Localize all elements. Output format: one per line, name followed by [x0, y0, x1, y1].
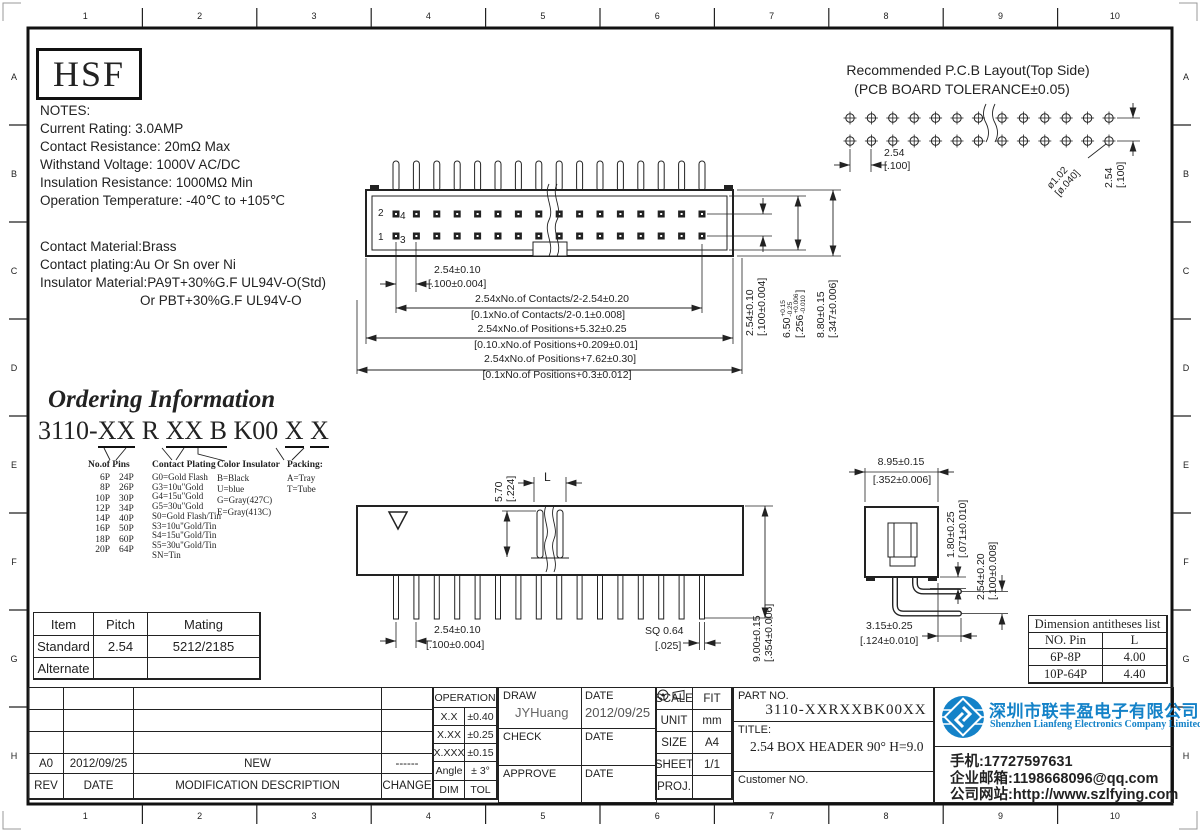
rev-cell: 2012/09/25	[64, 754, 134, 774]
ruler-mark: D	[6, 319, 22, 416]
rev-cell: A0	[29, 754, 64, 774]
table-cell: 6P-8P	[1029, 649, 1103, 666]
pcb-dim-pitch-mm: 2.54	[884, 147, 904, 159]
ruler-mark: 5	[486, 808, 600, 824]
material-line: Contact Material:Brass	[40, 239, 177, 254]
ruler-mark: 8	[829, 808, 943, 824]
item-pitch-mating-table: Item Pitch Mating Standard 2.54 5212/218…	[33, 612, 261, 680]
tol-cell: X.XX	[434, 726, 465, 744]
table-cell: Standard	[34, 636, 94, 658]
ruler-mark: 7	[714, 8, 828, 24]
list-item: 12P34P	[88, 504, 134, 514]
dim-tail2-in: [.124±0.010]	[860, 635, 918, 647]
front-view-drawing	[357, 477, 773, 650]
list-item: 18P60P	[88, 535, 134, 545]
unit-value: mm	[693, 710, 732, 732]
list-item: 16P50P	[88, 524, 134, 534]
ordering-col-pins: No.of Pins 6P24P8P26P10P30P12P34P14P40P1…	[88, 460, 134, 555]
ruler-mark: F	[6, 513, 22, 610]
table-cell: 10P-64P	[1029, 666, 1103, 683]
rev-cell: NEW	[134, 754, 382, 774]
material-line: Contact plating:Au Or Sn over Ni	[40, 257, 236, 272]
size-value: A4	[693, 732, 732, 754]
note-line: Operation Temperature: -40℃ to +105℃	[40, 193, 285, 209]
table-cell: 4.40	[1103, 666, 1167, 683]
tol-cell: ±0.40	[465, 708, 497, 726]
ordering-code-segment: B	[203, 416, 227, 448]
note-line: Contact Resistance: 20mΩ Max	[40, 139, 230, 154]
approve-label: APPROVE	[503, 768, 556, 780]
ruler-mark: 2	[142, 808, 256, 824]
title-label: TITLE:	[738, 724, 771, 736]
dim-pitch-in: [.100±0.004]	[428, 278, 486, 290]
ruler-mark: 5	[486, 8, 600, 24]
company-name-en: Shenzhen Lianfeng Electronics Company Li…	[990, 719, 1200, 730]
dimension-antitheses-table: Dimension antitheses list NO. Pin L 6P-8…	[1028, 615, 1168, 684]
dim-total-height: 9.00±0.15[.354±0.006]	[752, 604, 775, 662]
revision-table: A0 2012/09/25 NEW ------ REV DATE MODIFI…	[28, 687, 434, 800]
ordering-code-segment: X	[310, 416, 329, 448]
company-logo-icon	[940, 694, 986, 740]
tol-cell: X.XXX	[434, 744, 465, 762]
list-item: E=Gray(413C)	[217, 507, 280, 518]
ruler-top: 12345678910	[28, 8, 1172, 24]
rev-header: REV	[29, 774, 64, 799]
ruler-mark: G	[6, 610, 22, 707]
dim-tail-length: 5.70[.224]	[494, 476, 517, 502]
ruler-mark: D	[1178, 319, 1194, 416]
tol-cell: DIM	[434, 781, 465, 799]
ruler-mark: 10	[1058, 808, 1172, 824]
pcb-dim-pitch-in: [.100]	[884, 160, 910, 172]
list-item: 6P24P	[88, 473, 134, 483]
dim-positions2-in: [0.1xNo.of Positions+0.3±0.012]	[482, 369, 631, 381]
ordering-title: Ordering Information	[48, 386, 275, 414]
ordering-col-header: No.of Pins	[88, 460, 134, 470]
ruler-mark: F	[1178, 513, 1194, 610]
ruler-mark: 9	[943, 8, 1057, 24]
ruler-mark: 8	[829, 8, 943, 24]
dim-frontpitch-in: [.100±0.004]	[426, 639, 484, 651]
part-block: PART NO. 3110-XXRXXBK00XX TITLE: 2.54 BO…	[733, 687, 935, 803]
ordering-col-header: Packing:	[287, 460, 323, 470]
table-cell: Alternate	[34, 658, 94, 679]
ruler-mark: H	[6, 707, 22, 804]
ruler-mark: A	[6, 28, 22, 125]
tolerance-table: OPERATION X.X ±0.40 X.XX ±0.25 X.XXX ±0.…	[433, 687, 498, 800]
pcb-layout-title: Recommended P.C.B Layout(Top Side)	[846, 62, 1089, 78]
dim-positions1-in: [0.10.xNo.of Positions+0.209±0.01]	[474, 339, 638, 351]
date-label: DATE	[585, 690, 614, 702]
pcb-dim-row: 2.54[.100]	[1104, 162, 1127, 188]
company-website: 公司网站:http://www.szlfying.com	[950, 783, 1178, 804]
list-item: 10P30P	[88, 494, 134, 504]
note-line: Withstand Voltage: 1000V AC/DC	[40, 157, 240, 172]
list-item: G=Gray(427C)	[217, 495, 280, 506]
table-title: OPERATION	[434, 688, 497, 708]
ruler-bottom: 12345678910	[28, 808, 1172, 824]
list-item: 14P40P	[88, 514, 134, 524]
table-cell	[148, 658, 260, 679]
ruler-mark: 3	[257, 8, 371, 24]
draw-date: 2012/09/25	[585, 705, 650, 720]
check-label: CHECK	[503, 731, 542, 743]
company-block: 深圳市联丰盈电子有限公司 Shenzhen Lianfeng Electroni…	[933, 687, 1174, 803]
part-no-label: PART NO.	[738, 690, 789, 702]
size-label: SIZE	[656, 732, 693, 754]
ruler-mark: 3	[257, 808, 371, 824]
company-logo-hsf: HSF	[36, 48, 142, 100]
list-item: B=Black	[217, 473, 280, 484]
proj-label: PROJ.	[656, 776, 693, 799]
list-item: 8P26P	[88, 483, 134, 493]
ruler-mark: 9	[943, 808, 1057, 824]
pin-label-4: 4	[400, 211, 406, 222]
ruler-mark: 7	[714, 808, 828, 824]
dim-pitch-mm: 2.54±0.10	[434, 264, 481, 276]
dim-tail2-mm: 3.15±0.25	[866, 620, 913, 632]
dim-L-label: L	[544, 470, 551, 484]
ruler-mark: 1	[28, 808, 142, 824]
dim-frontpitch-mm: 2.54±0.10	[434, 624, 481, 636]
part-no-value: 3110-XXRXXBK00XX	[765, 702, 926, 719]
scale-value: FIT	[693, 688, 732, 710]
ordering-col-plating: Contact Plating G0=Gold FlashG3=10u"Gold…	[152, 460, 221, 560]
dim-sq-mm: SQ 0.64	[645, 625, 684, 637]
tol-cell: ±0.15	[465, 744, 497, 762]
pcb-layout-pads	[834, 103, 1140, 172]
material-line: Or PBT+30%G.F UL94V-O	[140, 293, 302, 308]
sheet-label: SHEET	[656, 754, 693, 776]
drawing-sheet: 12345678910 12345678910 ABCDEFGH ABCDEFG…	[0, 0, 1200, 832]
ruler-mark: B	[1178, 125, 1194, 222]
pcb-layout-tolerance: (PCB BOARD TOLERANCE±0.05)	[854, 81, 1070, 97]
ordering-code-segment: X	[285, 416, 304, 448]
note-line: Insulation Resistance: 1000MΩ Min	[40, 175, 253, 190]
table-header: Pitch	[94, 613, 148, 636]
table-cell: 4.00	[1103, 649, 1167, 666]
ordering-col-header: Contact Plating	[152, 460, 221, 470]
projection-symbol-icon	[693, 776, 732, 799]
dim-width-mm: 8.95±0.15	[878, 456, 925, 468]
ruler-mark: 1	[28, 8, 142, 24]
table-cell	[94, 658, 148, 679]
unit-label: UNIT	[656, 710, 693, 732]
rev-header: CHANGE	[382, 774, 433, 799]
dim-outer-height: 8.80±0.15[.347±0.006]	[816, 280, 839, 338]
tol-cell: ± 3°	[465, 762, 497, 781]
dim-row-pitch: 2.54±0.20[.100±0.008]	[976, 542, 999, 600]
ruler-mark: E	[6, 416, 22, 513]
ordering-code: 3110-XX R XX B K00 X X	[38, 416, 329, 446]
table-title: Dimension antitheses list	[1029, 616, 1167, 633]
tol-cell: TOL	[465, 781, 497, 799]
draw-name: JYHuang	[515, 705, 568, 720]
customer-label: Customer NO.	[738, 774, 808, 786]
rev-header: MODIFICATION DESCRIPTION	[134, 774, 382, 799]
dim-sq-in: [.025]	[655, 640, 681, 652]
material-line: Insulator Material:PA9T+30%G.F UL94V-O(S…	[40, 275, 326, 290]
ordering-col-insulator: Color Insulator B=BlackU=blueG=Gray(427C…	[217, 460, 280, 518]
ordering-code-segment: XX	[98, 416, 136, 448]
table-cell: 2.54	[94, 636, 148, 658]
dim-inner-height: 6.50+0.15-0.25 [.256+0.006-0.010]	[781, 290, 807, 338]
table-header: Mating	[148, 613, 260, 636]
rev-cell: ------	[382, 754, 433, 774]
dim-positions2-mm: 2.54xNo.of Positions+7.62±0.30]	[484, 353, 636, 365]
table-header: Item	[34, 613, 94, 636]
ruler-mark: G	[1178, 610, 1194, 707]
dim-contacts-mm: 2.54xNo.of Contacts/2-2.54±0.20	[475, 293, 629, 305]
dim-pin-offset: 1.80±0.25[.071±0.010]	[946, 500, 969, 558]
ruler-left: ABCDEFGH	[6, 28, 22, 804]
ruler-mark: 6	[600, 8, 714, 24]
ruler-mark: 10	[1058, 8, 1172, 24]
notes-title: NOTES:	[40, 103, 90, 118]
ruler-mark: C	[6, 222, 22, 319]
ordering-code-segment: 3110-	[38, 416, 98, 445]
pin-label-1: 1	[378, 232, 384, 243]
dim-row-spacing: 2.54±0.10[.100±0.004]	[745, 278, 768, 336]
logo-text: HSF	[53, 53, 125, 95]
ordering-col-packing: Packing: A=TrayT=Tube	[287, 460, 323, 495]
ruler-mark: 6	[600, 808, 714, 824]
ruler-mark: 2	[142, 8, 256, 24]
ruler-right: ABCDEFGH	[1178, 28, 1194, 804]
ruler-mark: B	[6, 125, 22, 222]
draw-label: DRAW	[503, 690, 536, 702]
list-item: 20P64P	[88, 545, 134, 555]
dim-contacts-in: [0.1xNo.of Contacts/2-0.1±0.008]	[471, 309, 625, 321]
list-item: A=Tray	[287, 473, 323, 484]
table-header: L	[1103, 633, 1167, 649]
ruler-mark: E	[1178, 416, 1194, 513]
title-value: 2.54 BOX HEADER 90° H=9.0	[750, 739, 924, 755]
ordering-col-header: Color Insulator	[217, 460, 280, 470]
signature-block: DRAW JYHuang DATE 2012/09/25 CHECK DATE …	[498, 687, 657, 803]
sheet-value: 1/1	[693, 754, 732, 776]
tol-cell: X.X	[434, 708, 465, 726]
list-item: SN=Tin	[152, 551, 221, 561]
list-item: T=Tube	[287, 484, 323, 495]
ruler-mark: A	[1178, 28, 1194, 125]
rev-header: DATE	[64, 774, 134, 799]
note-line: Current Rating: 3.0AMP	[40, 121, 183, 136]
ordering-code-segment: R	[135, 416, 165, 445]
pin-label-3: 3	[400, 235, 406, 246]
list-item: U=blue	[217, 484, 280, 495]
ruler-mark: C	[1178, 222, 1194, 319]
ruler-mark: 4	[371, 8, 485, 24]
info-table: SCALE FIT UNIT mm SIZE A4 SHEET 1/1 PROJ…	[655, 687, 733, 800]
pin-label-2: 2	[378, 208, 384, 219]
table-cell: 5212/2185	[148, 636, 260, 658]
dim-positions1-mm: 2.54xNo.of Positions+5.32±0.25	[477, 323, 626, 335]
ordering-code-segment: K00	[227, 416, 285, 445]
dim-width-in: [.352±0.006]	[873, 474, 931, 486]
tol-cell: ±0.25	[465, 726, 497, 744]
tol-cell: Angle	[434, 762, 465, 781]
ordering-code-segment: XX	[166, 416, 204, 448]
date-label: DATE	[585, 731, 614, 743]
table-header: NO. Pin	[1029, 633, 1103, 649]
ruler-mark: 4	[371, 808, 485, 824]
date-label: DATE	[585, 768, 614, 780]
